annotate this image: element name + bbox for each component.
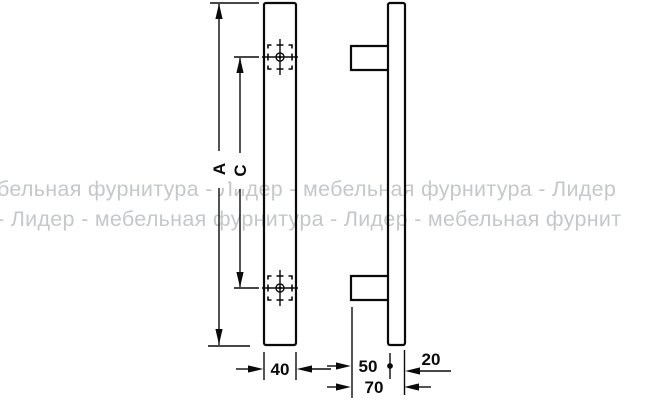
- mounting-hole-bottom: [262, 270, 298, 306]
- watermark-line-2: - Лидер - мебельная фурнитура - Лидер - …: [0, 207, 621, 231]
- mounting-post-bottom: [351, 276, 388, 300]
- watermark: бельная фурнитура - Лидер - мебельная фу…: [0, 177, 621, 231]
- dimension-20: 20: [405, 350, 451, 375]
- mounting-hole-top: [262, 39, 298, 75]
- dimension-label-C: C: [231, 164, 250, 176]
- dimension-label-40: 40: [271, 360, 290, 379]
- dimension-label-A: A: [210, 163, 229, 175]
- watermark-line-1: бельная фурнитура - Лидер - мебельная фу…: [0, 177, 616, 201]
- dimension-label-70: 70: [365, 378, 384, 397]
- dimension-label-50: 50: [359, 357, 378, 376]
- dimension-50: 50: [327, 357, 393, 376]
- handle-bar-side: [388, 3, 405, 345]
- technical-drawing: бельная фурнитура - Лидер - мебельная фу…: [0, 0, 659, 400]
- dimension-dot-terminator: [387, 363, 393, 369]
- dimension-label-20: 20: [422, 350, 441, 369]
- dimension-40: 40: [236, 352, 331, 380]
- mounting-post-top: [351, 46, 388, 70]
- dimension-70: 70: [327, 378, 431, 397]
- drawing-canvas: бельная фурнитура - Лидер - мебельная фу…: [0, 0, 659, 400]
- dimension-C: C: [231, 57, 259, 288]
